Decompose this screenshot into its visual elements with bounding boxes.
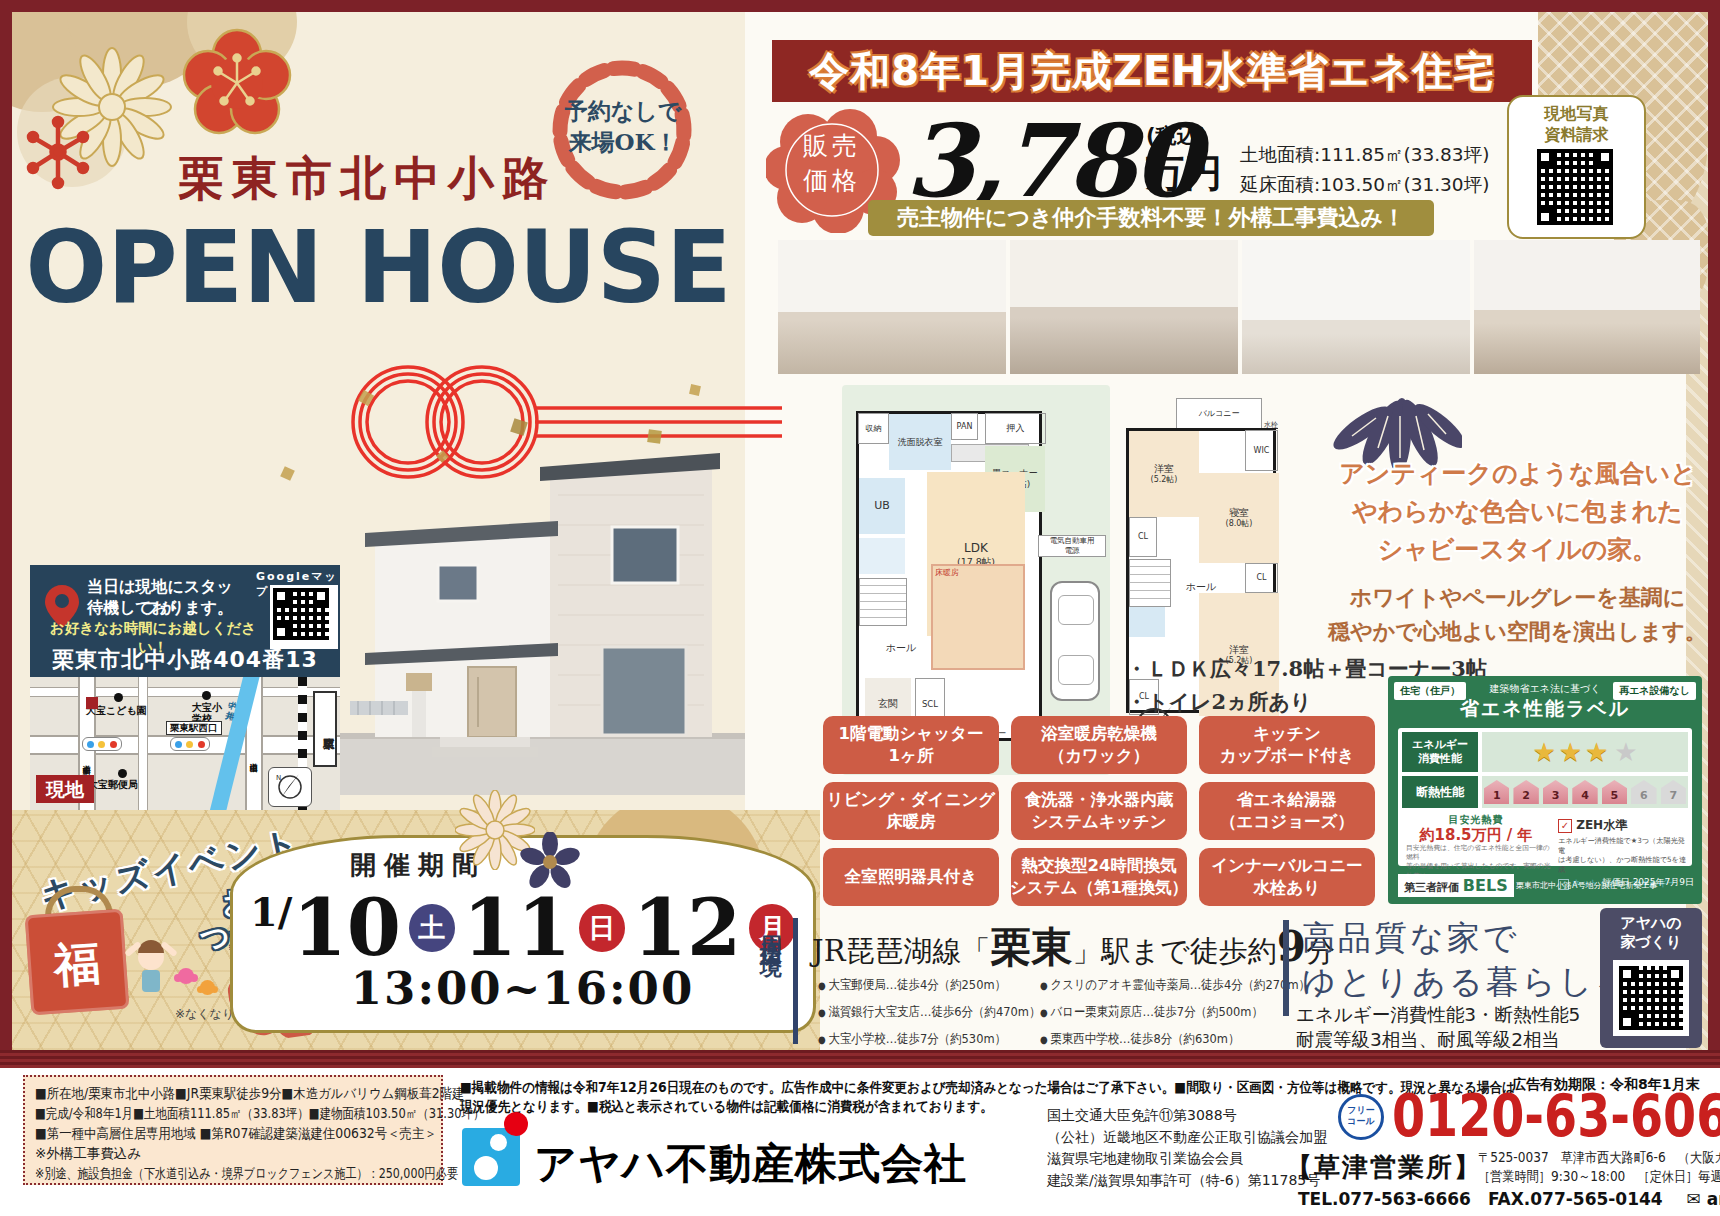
- access-item: 栗東西中学校…徒歩8分（約630m）: [1040, 1026, 1238, 1053]
- area-info: 土地面積:111.85㎡(33.83坪) 延床面積:103.50㎡(31.30坪…: [1240, 140, 1489, 200]
- feature-box: 省エネ給湯器（エコジョーズ）: [1199, 782, 1375, 840]
- room-hall-1f: ホール: [873, 628, 929, 668]
- map-west-exit: 栗東駅西口: [166, 721, 222, 735]
- label-tab-left: 住宅（住戸）: [1394, 682, 1466, 700]
- mail-icon: ✉: [1687, 1189, 1701, 1209]
- detail-line: ■所在地/栗東市北中小路■JR栗東駅徒歩9分■木造ガルバリウム鋼板葺2階建: [35, 1083, 399, 1103]
- map-compass: N: [268, 767, 312, 807]
- request-qr-code: [1537, 149, 1613, 225]
- room-washroom: 洗面脱衣室: [889, 414, 951, 470]
- zeh-text: ZEH水準: [1576, 818, 1627, 832]
- schedule-dates: 1/ 10 土 11 日 12 月: [250, 882, 795, 973]
- quality-divider: [1283, 920, 1289, 1016]
- license-line: （公社）近畿地区不動産公正取引協議会加盟: [1047, 1127, 1327, 1149]
- insulation-label: 断熱性能: [1402, 776, 1478, 808]
- contact-line: TEL.077-563-6666 FAX.077-565-0144 ✉ arne…: [1298, 1188, 1720, 1211]
- room-ub: UB: [859, 478, 905, 534]
- day3: 12: [633, 882, 742, 973]
- month-text: 1/: [250, 888, 292, 935]
- frame-left: [0, 0, 12, 1068]
- room-yoshitsu1: 洋室(5.2帖): [1129, 431, 1199, 517]
- insulation-scale: 1 2 3 4 5 6 7: [1482, 776, 1688, 808]
- room-storage: 収納: [858, 413, 889, 444]
- map-road: [30, 687, 340, 697]
- tel-fax: TEL.077-563-6666 FAX.077-565-0144: [1298, 1189, 1663, 1209]
- cost-head: 目安光熱費: [1402, 813, 1550, 827]
- license-list: 国土交通大臣免許⑪第3088号 （公社）近畿地区不動産公正取引協議会加盟 滋賀県…: [1047, 1105, 1327, 1191]
- access-divider: [793, 918, 798, 1044]
- access-item: バロー栗東苅原店…徒歩7分（約500m）: [1040, 999, 1238, 1026]
- candy-icon: [178, 968, 194, 984]
- catch-sub: ホワイトやペールグレーを基調に 穏やかで心地よい空間を演出します。: [1325, 580, 1710, 648]
- floor-heating-area: 床暖房: [931, 564, 1025, 670]
- land-area: 土地面積:111.85㎡(33.83坪): [1240, 140, 1489, 170]
- room-pantry: PAN: [951, 413, 978, 440]
- feature-box: インナーバルコニー水栓あり: [1199, 848, 1375, 906]
- bels-date: 評価日 2025年7月9日: [1603, 876, 1694, 889]
- company-qr-title: アヤハの家づくり: [1600, 914, 1702, 952]
- schedule-time: 13:00~16:00: [250, 962, 795, 1015]
- detail-line: ※外構工事費込み: [35, 1143, 431, 1163]
- ev-power-label: 電気自動車用電源: [1038, 535, 1106, 557]
- interior-photo-ldk: [778, 240, 1006, 374]
- license-line: 滋賀県宅地建物取引業協会会員: [1047, 1148, 1327, 1170]
- weekday-sat-badge: 土: [409, 904, 455, 952]
- access-heading: JR琵琶湖線「栗東」駅まで徒歩約9分: [812, 920, 1335, 975]
- feature-box: リビング・ダイニング床暖房: [823, 782, 999, 840]
- map-genchi-label: 現地: [36, 775, 94, 803]
- room-wic: WIC: [1245, 430, 1278, 471]
- qr-card-title: 現地写真資料請求: [1509, 104, 1644, 146]
- room-balcony: バルコニー: [1176, 398, 1262, 430]
- email: arnet-ks@ayaha.co.jp: [1707, 1189, 1720, 1209]
- check-icon: ✓: [1558, 819, 1572, 833]
- badge-line1: 予約なしで: [565, 97, 682, 124]
- feature-box: 1階電動シャッター1ヶ所: [823, 716, 999, 774]
- red-divider-band: [0, 1050, 1720, 1068]
- site-marker: [86, 697, 98, 709]
- estimated-cost: 約18.5万円 / 年: [1402, 826, 1550, 845]
- access-item: 滋賀銀行大宝支店…徒歩6分（約470m）: [818, 999, 1016, 1026]
- map-shin-road: 新中山道: [80, 757, 91, 761]
- map-post-office: 大宝郵便局: [88, 779, 138, 790]
- access-list-left: 大宝郵便局…徒歩4分（約250m） 滋賀銀行大宝支店…徒歩6分（約470m） 大…: [818, 972, 1043, 1053]
- flyer-page: 予約なしで 来場OK！ 栗東市北中小路 OPEN HOUSE: [0, 0, 1720, 1216]
- star-rating: ★★★ ★: [1482, 732, 1688, 772]
- interior-photo-washroom: [1242, 240, 1470, 374]
- child-illustration: [126, 938, 176, 996]
- qr-request-card: 現地写真資料請求: [1507, 95, 1646, 239]
- feature-box: キッチンカップボード付き: [1199, 716, 1375, 774]
- traffic-signal-icon: [170, 737, 210, 751]
- access-list-right: クスリのアオキ霊仙寺薬局…徒歩4分（約270m） バロー栗東苅原店…徒歩7分（約…: [1040, 972, 1265, 1053]
- access-item: 大宝郵便局…徒歩4分（約250m）: [818, 972, 1016, 999]
- map-road: [138, 677, 148, 812]
- price-tax: (税込): [1146, 122, 1207, 150]
- company-qr-code: [1619, 966, 1683, 1030]
- room-cl2: CL: [1129, 517, 1157, 557]
- room-bedroom: 寝室(8.0帖): [1199, 473, 1279, 563]
- plum-blossom-icon: [175, 28, 300, 143]
- company-qr-box: アヤハの家づくり: [1600, 908, 1702, 1048]
- day1: 10: [292, 882, 401, 973]
- phone-number: 0120-63-6066: [1392, 1082, 1720, 1150]
- star-empty: ★: [1614, 737, 1637, 767]
- traffic-signal-icon: [82, 737, 122, 751]
- detail-line: ※別途、施設負担金（下水道引込み・境界ブロックフェンス施工）：250,000円必…: [35, 1163, 360, 1183]
- catch-copy: アンティークのような風合いと やわらかな色合いに包まれた シャビースタイルの家。: [1325, 455, 1710, 569]
- quality-spec: エネルギー消費性能3・断熱性能5 耐震等級3相当、耐風等級2相当: [1296, 1002, 1580, 1052]
- map-dot: [118, 769, 127, 778]
- room-cl1: CL: [1245, 563, 1278, 593]
- site-info-box: 当日は現地にスタッフが 待機しております。 お好きなお時間にお越しください！ 栗…: [30, 565, 340, 677]
- map-qr-frame: [270, 585, 338, 649]
- energy-label: 住宅（住戸） 再エネ設備なし 建築物省エネ法に基づく 省エネ性能ラベル エネルギ…: [1388, 676, 1702, 904]
- bels-logo: BELS: [1463, 876, 1508, 895]
- free-call-icon: フリーコール: [1338, 1094, 1384, 1140]
- frame-top: [0, 0, 1720, 12]
- bels-row: 第三者評価 BELS 栗東市北中小路A号地分譲住宅新築工事 評価日 2025年7…: [1388, 870, 1702, 904]
- completion-banner: 令和8年1月完成ZEH水準省エネ住宅: [772, 40, 1532, 102]
- access-side-label: 周辺環境: [757, 918, 787, 1048]
- feature-box: 浴室暖房乾燥機（カワック）: [1011, 716, 1187, 774]
- floor-area: 延床面積:103.50㎡(31.30坪): [1240, 170, 1489, 200]
- feature-box: 食洗器・浄水器内蔵システムキッチン: [1011, 782, 1187, 840]
- license-line: 国土交通大臣免許⑪第3088号: [1047, 1105, 1327, 1127]
- day2: 11: [463, 882, 572, 973]
- license-line: 建設業/滋賀県知事許可（特-6）第11785号: [1047, 1170, 1327, 1192]
- google-map-qr-code: [273, 588, 329, 640]
- stairs-2f: [1129, 559, 1171, 607]
- location-title: 栗東市北中小路: [12, 148, 722, 210]
- area-map: 中ノ井川 栗東駅 大宝こども園 大宝小学校 栗東駅西口 大宝郵便局 新中山道 旧…: [30, 677, 340, 812]
- staff-line2: 待機しております。: [80, 598, 240, 619]
- room-toilet-1f: [859, 538, 905, 574]
- label-tab-right: 再エネ設備なし: [1613, 682, 1696, 700]
- map-kyu-road: 旧中山道: [247, 755, 258, 759]
- house-photo: [320, 415, 745, 795]
- property-details-box: ■所在地/栗東市北中小路■JR栗東駅徒歩9分■木造ガルバリウム鋼板葺2階建 ■完…: [23, 1075, 443, 1185]
- feature-box: 熱交換型24時間換気システム（第1種換気）: [1011, 848, 1187, 906]
- weekday-sun-badge: 日: [579, 904, 625, 952]
- price-label: 販売価格: [786, 128, 878, 198]
- main-title: OPEN HOUSE: [12, 210, 745, 326]
- detail-line: ■第一種中高層住居専用地域 ■第R07確認建築滋建住00632号＜売主＞: [35, 1123, 399, 1143]
- access-item: 大宝小学校…徒歩7分（約530m）: [818, 1026, 1016, 1053]
- map-dot: [114, 693, 123, 702]
- station-label: 栗東駅: [313, 691, 337, 767]
- room-oshiire: 押入: [985, 413, 1046, 444]
- access-item: クスリのアオキ霊仙寺薬局…徒歩4分（約270m）: [1040, 972, 1238, 999]
- fukubukuro-bag: 福: [25, 909, 130, 1016]
- car-outline: [1050, 581, 1100, 701]
- price-unit: 万円: [1146, 148, 1222, 199]
- detail-line: ■完成/令和8年1月■土地面積111.85㎡（33.83坪）■建物面積103.5…: [35, 1103, 372, 1123]
- river-label: 中ノ井川: [228, 694, 239, 706]
- site-address: 栗東市北中小路404番13: [30, 645, 340, 675]
- bels-chip: 第三者評価 BELS: [1398, 874, 1514, 897]
- feature-box: 全室照明器具付き: [823, 848, 999, 906]
- interior-photo-living: [1010, 240, 1238, 374]
- fuku-character: 福: [52, 932, 102, 997]
- office-name: 【草津営業所】: [1286, 1150, 1482, 1185]
- candy-icon: [200, 980, 215, 995]
- confetti: [689, 384, 701, 396]
- company-logo-icon: [458, 1112, 528, 1196]
- energy-consumption-label: エネルギー消費性能: [1402, 732, 1478, 772]
- company-name: アヤハ不動産株式会社: [534, 1136, 967, 1192]
- quality-title: 高品質な家でゆとりある暮らしを: [1302, 916, 1632, 1004]
- no-commission-banner: 売主物件につき仲介手数料不要！外構工事費込み！: [868, 200, 1434, 236]
- office-info: 〒525-0037 草津市西大路町6-6 （大阪ガス隣） ［営業時間］9:30～…: [1478, 1148, 1720, 1186]
- room-toilet-2f: [1129, 607, 1165, 637]
- stars-filled: ★★★: [1532, 737, 1611, 767]
- interior-photo-kitchen: [1474, 240, 1700, 374]
- svg-text:N: N: [276, 774, 281, 782]
- map-dot: [202, 691, 211, 700]
- stairs-1f: [859, 578, 907, 626]
